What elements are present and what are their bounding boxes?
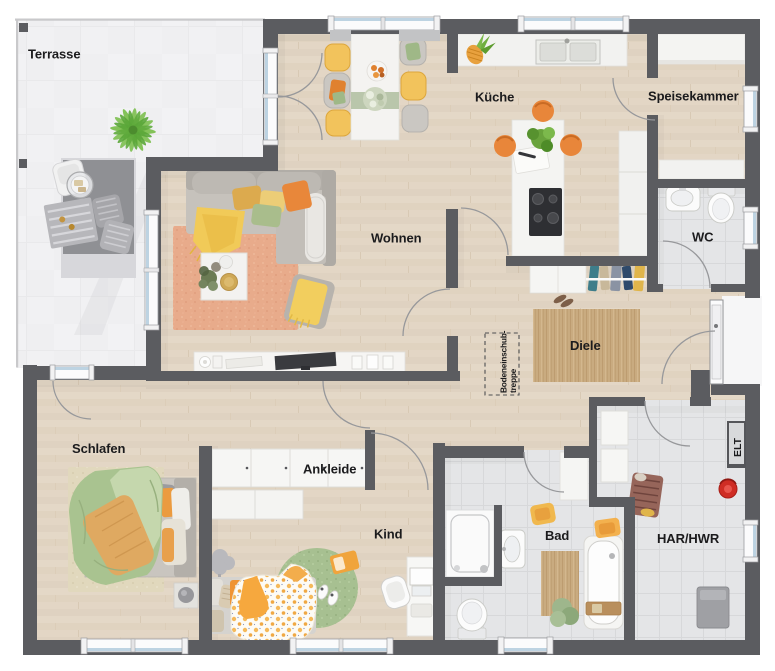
svg-text:Wohnen: Wohnen [371,231,422,246]
svg-text:Terrasse: Terrasse [28,47,80,62]
svg-text:Bad: Bad [545,528,569,543]
svg-text:Bodeneinschub-: Bodeneinschub- [499,330,509,393]
svg-text:Küche: Küche [475,90,514,105]
svg-text:Kind: Kind [374,527,403,542]
svg-text:Schlafen: Schlafen [72,441,126,456]
svg-text:WC: WC [692,230,714,245]
svg-text:HAR/HWR: HAR/HWR [657,531,720,546]
svg-text:Ankleide: Ankleide [303,462,356,477]
svg-text:treppe: treppe [508,368,518,393]
svg-text:ELT: ELT [732,437,744,457]
svg-text:Speisekammer: Speisekammer [648,89,739,104]
svg-text:Diele: Diele [570,338,601,353]
